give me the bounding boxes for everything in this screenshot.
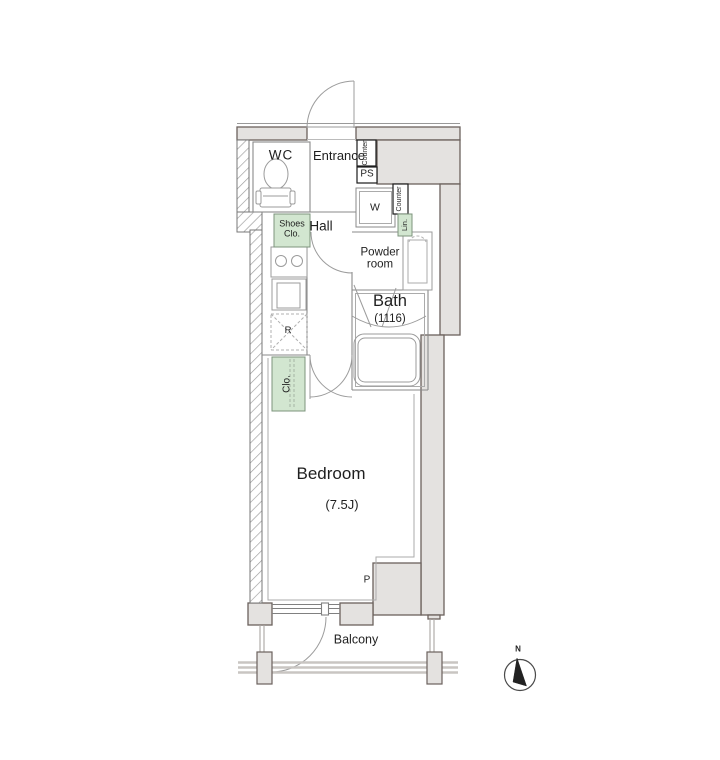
balcony-door-arc	[271, 617, 326, 672]
bathtub-icon	[352, 316, 426, 386]
window	[272, 603, 340, 615]
hall-label: Hall	[309, 220, 332, 235]
bedroom-size-label: (7.5J)	[325, 498, 358, 512]
counter-top-label: Counter	[362, 141, 370, 166]
powder-room-label: Powder room	[347, 247, 413, 272]
balcony-post-right	[427, 652, 442, 684]
washer-label: W	[370, 202, 380, 213]
entrance-label: Entrance	[313, 149, 365, 163]
bedroom-label: Bedroom	[297, 465, 366, 483]
sink-icon	[272, 279, 306, 310]
compass-north-label: N	[515, 646, 521, 655]
floor-plan: WC Entrance Counter PS W Counter Lin. Sh…	[0, 0, 720, 760]
stove-icon	[271, 247, 307, 277]
balcony-railing	[238, 619, 458, 684]
bath-size-label: (1116)	[374, 313, 406, 325]
bedroom-door-arcs	[310, 355, 352, 399]
hatched-wall	[237, 140, 262, 603]
compass-icon	[505, 658, 536, 691]
shoes-closet-label: Shoes Clo.	[272, 219, 312, 238]
closet-label: Clo.	[283, 375, 294, 393]
ps-label: PS	[360, 170, 373, 181]
counter-side-label: Counter	[396, 187, 404, 212]
powder-door-arc	[311, 232, 352, 273]
toilet-icon	[256, 159, 295, 207]
balcony-post-left	[257, 652, 272, 684]
pipe-space-label: P	[364, 576, 371, 587]
balcony-label: Balcony	[334, 633, 378, 647]
bath-label: Bath	[373, 293, 407, 311]
linen-label: Lin.	[401, 219, 409, 231]
entrance-door-arc	[307, 81, 354, 128]
wc-label: WC	[269, 149, 294, 164]
refrigerator-label: R	[285, 326, 292, 336]
